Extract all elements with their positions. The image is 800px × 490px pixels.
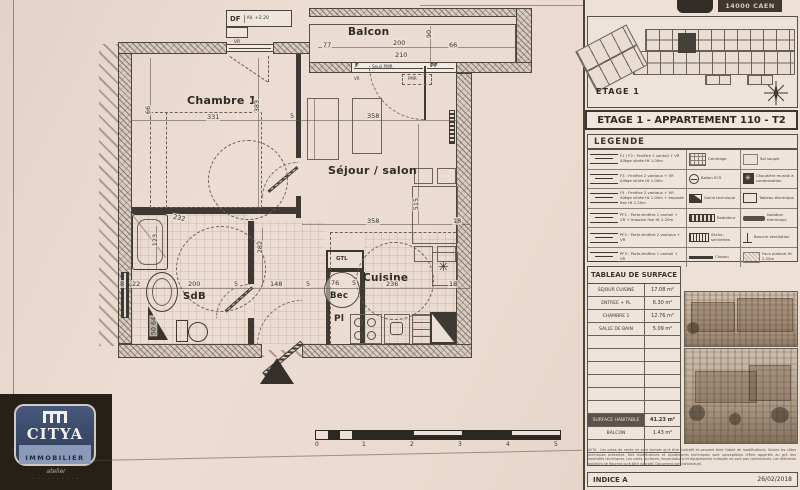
bouche-ventilation-icon bbox=[743, 233, 752, 243]
legend-text: Chaudière murale à condensation bbox=[756, 174, 795, 184]
surface-total-label: SURFACE HABITABLE bbox=[588, 414, 645, 426]
dim-line bbox=[262, 228, 263, 286]
dim-line bbox=[120, 288, 470, 289]
room-label-bec: Bec bbox=[330, 291, 348, 301]
surface-balcon-value: 1.43 m² bbox=[645, 427, 680, 439]
legend-text: F3 : Fenêtre 2 vantaux + VR Allège vitré… bbox=[620, 174, 684, 184]
legend-text: F1 / F2 : Fenêtre 1 vantail + VR Allège … bbox=[620, 154, 684, 164]
legend-row: F1 / F2 : Fenêtre 1 vantail + VR Allège … bbox=[588, 150, 797, 170]
dim-label: 66 bbox=[448, 41, 458, 49]
wall-balcony-right bbox=[516, 8, 532, 66]
tableau-electrique-icon bbox=[743, 193, 757, 203]
surface-row-empty bbox=[588, 388, 680, 401]
building-render-2 bbox=[684, 348, 798, 444]
cloison-icon bbox=[689, 256, 713, 259]
legend-text: PF2 : Porte-fenêtre 2 vantaux + VR bbox=[620, 233, 684, 243]
surface-label: ENTREE + PL bbox=[588, 297, 645, 309]
window-symbol bbox=[590, 213, 618, 223]
dim-label: 358 bbox=[366, 112, 380, 120]
wall-bottom-left bbox=[118, 344, 262, 358]
building-strip bbox=[633, 51, 795, 75]
surface-row: CHAMBRE 112.76 m² bbox=[588, 310, 680, 323]
surface-balcon-row: BALCON1.43 m² bbox=[588, 427, 680, 440]
legend-text: F4 : Fenêtre 2 vantaux + VR Allège vitré… bbox=[620, 191, 684, 206]
dim-label: 5 bbox=[351, 279, 357, 287]
column-icon bbox=[43, 411, 67, 423]
scale-tick: 3 bbox=[458, 441, 462, 448]
footer-band: INDICE A 26/02/2018 bbox=[587, 472, 798, 487]
dim-label: 18 bbox=[452, 217, 462, 225]
legend-row: F3 : Fenêtre 2 vantaux + VR Allège vitré… bbox=[588, 170, 797, 190]
room-label-chambre: Chambre 1 bbox=[187, 94, 257, 107]
dim-label: 123 bbox=[151, 233, 159, 247]
citya-logo-shield: CITYA IMMOBILIER bbox=[14, 404, 96, 466]
label-vr2: VR bbox=[354, 76, 360, 81]
date-text: 26/02/2018 bbox=[757, 476, 792, 483]
building-render-1 bbox=[684, 291, 798, 347]
indice-text: INDICE A bbox=[593, 476, 628, 484]
dim-label: 282 bbox=[256, 240, 264, 254]
surface-heading-text: TABLEAU DE SURFACE bbox=[591, 271, 677, 279]
dim-label: 358 bbox=[366, 217, 380, 225]
stove-burner bbox=[367, 331, 376, 340]
city-band: 14000 CAEN bbox=[718, 0, 782, 12]
legend-text: Gaine technique bbox=[704, 196, 735, 201]
dim-line bbox=[302, 224, 470, 225]
site-plan-box: ETAGE 1 bbox=[587, 16, 798, 108]
legend-row: PF2 : Porte-fenêtre 2 vantaux + VR Sèche… bbox=[588, 228, 797, 248]
citya-brand-text: CITYA bbox=[27, 425, 84, 443]
dim-label: 5 bbox=[289, 112, 295, 120]
chaudiere-icon bbox=[743, 173, 754, 184]
towel-radiator bbox=[121, 272, 129, 318]
dim-label: 210 bbox=[394, 51, 408, 59]
toilet-bowl bbox=[188, 322, 208, 342]
surface-value: 6.30 m² bbox=[645, 297, 680, 309]
citya-subbrand-band: IMMOBILIER bbox=[19, 445, 91, 464]
window-symbol bbox=[590, 174, 618, 184]
legend-row: F4 : Fenêtre 2 vantaux + VR Allège vitré… bbox=[588, 189, 797, 209]
scale-bar: 0 1 2 3 4 5 bbox=[315, 430, 562, 449]
scale-tick: 0 bbox=[315, 441, 319, 448]
compass-icon bbox=[764, 81, 788, 105]
legend-row: PF3 : Porte-fenêtre 1 vantail + VR Clois… bbox=[588, 248, 797, 267]
plan-title: ETAGE 1 - APPARTEMENT 110 - T2 bbox=[597, 115, 786, 126]
wall-top-right bbox=[273, 42, 310, 54]
df-swing-line2 bbox=[268, 56, 269, 82]
dim-label: 515 bbox=[412, 197, 420, 211]
surface-total-row: SURFACE HABITABLE41.23 m² bbox=[588, 414, 680, 427]
label-pmr: PMR bbox=[408, 76, 417, 81]
bed-head-line bbox=[166, 112, 167, 208]
toilet-tank bbox=[176, 320, 188, 342]
sink-bowl bbox=[390, 322, 403, 335]
dim-label: 50 64 bbox=[149, 316, 157, 337]
scale-segment bbox=[414, 430, 463, 440]
dim-label: 77 bbox=[322, 41, 332, 49]
legend-text: Isolation thermique bbox=[767, 213, 795, 223]
exterior-hatch-left bbox=[99, 44, 118, 346]
window-symbol bbox=[590, 233, 618, 243]
stove-burner bbox=[354, 331, 363, 340]
dim-line bbox=[132, 120, 456, 121]
promoter-logo bbox=[677, 0, 713, 13]
floor-label: ETAGE 1 bbox=[596, 87, 640, 96]
title-block-sidebar: 14000 CAEN ETAGE 1 ETAGE 1 - APPARTEMENT… bbox=[583, 0, 800, 490]
room-label-sdb: SdB bbox=[183, 291, 206, 302]
wall-sdb-right-b bbox=[248, 318, 254, 344]
wall-right bbox=[456, 73, 472, 355]
surface-row-empty bbox=[588, 362, 680, 375]
legend-text: Carrelage bbox=[708, 157, 726, 162]
facade-left bbox=[309, 62, 352, 73]
surface-row: SEJOUR CUISINE17.08 m² bbox=[588, 284, 680, 297]
scale-tick: 1 bbox=[362, 441, 366, 448]
surface-row: ENTREE + PL6.30 m² bbox=[588, 297, 680, 310]
citya-logo-block: CITYA IMMOBILIER atelier · · · · · · · ·… bbox=[0, 396, 112, 490]
legend-text: PF3 : Porte-fenêtre 1 vantail + VR bbox=[620, 252, 684, 262]
ballon-ecs-icon bbox=[689, 174, 699, 184]
sofa bbox=[307, 98, 339, 160]
legend-row: PF1 : Porte-fenêtre 1 vantail + VR + Imp… bbox=[588, 209, 797, 229]
citya-subbrand-text: IMMOBILIER bbox=[25, 454, 84, 462]
dim-label: 5 bbox=[233, 280, 239, 288]
faux-plafond-icon bbox=[743, 252, 760, 263]
citya-letters-row: · · · · · · · · · · bbox=[0, 477, 112, 482]
citya-tagline: atelier bbox=[0, 468, 112, 475]
partition-chambre-a bbox=[296, 54, 301, 158]
surface-table: SEJOUR CUISINE17.08 m² ENTREE + PL6.30 m… bbox=[587, 284, 681, 466]
ballon-ecs-circle bbox=[324, 272, 360, 308]
scale-tick: 5 bbox=[554, 441, 558, 448]
room-label-balcon: Balcon bbox=[348, 26, 389, 38]
window-symbol bbox=[590, 193, 618, 203]
window-symbol bbox=[590, 252, 618, 262]
scale-segment bbox=[365, 430, 414, 440]
surface-row-empty bbox=[588, 375, 680, 388]
window-symbol bbox=[590, 154, 618, 164]
surface-value: 17.08 m² bbox=[645, 284, 680, 296]
label-df-note: All. +2.20 bbox=[245, 16, 271, 21]
building-strip bbox=[645, 29, 795, 51]
dim-label: 331 bbox=[206, 113, 220, 121]
scale-tick: 2 bbox=[410, 441, 414, 448]
coffee-table bbox=[352, 98, 382, 154]
legend-text: Sèche-serviettes bbox=[711, 233, 738, 243]
dim-label: 66 bbox=[144, 105, 152, 115]
washbasin-inner bbox=[152, 278, 172, 306]
surface-label: CHAMBRE 1 bbox=[588, 310, 645, 322]
balcony-floor bbox=[309, 24, 516, 64]
label-seuil-pmr: Seuil PMR bbox=[372, 64, 393, 69]
legend-text: Ballon ECS bbox=[701, 176, 721, 181]
surface-row-empty bbox=[588, 401, 680, 414]
dim-line bbox=[258, 58, 259, 214]
surface-balcon-label: BALCON bbox=[588, 427, 645, 439]
room-label-pl: Pl bbox=[334, 314, 344, 324]
label-pf: PF bbox=[430, 63, 438, 69]
isolation-icon bbox=[743, 216, 765, 221]
scale-segment bbox=[463, 430, 512, 440]
balcony-separation-strip bbox=[309, 8, 532, 17]
scale-segment bbox=[316, 430, 365, 440]
surface-row-empty bbox=[588, 349, 680, 362]
legend-text: Faux plafond Ht 2.20m bbox=[762, 252, 795, 262]
window-df bbox=[227, 44, 273, 52]
dim-label: 200 bbox=[187, 280, 201, 288]
radiator-sejour bbox=[449, 110, 455, 144]
dim-label: 148 bbox=[269, 280, 283, 288]
surface-value: 12.76 m² bbox=[645, 310, 680, 322]
facade-right-step bbox=[456, 62, 532, 73]
legend-text: Bouche ventilation bbox=[754, 235, 790, 240]
building-annex bbox=[705, 75, 731, 85]
seche-serviettes-icon bbox=[689, 233, 709, 242]
dim-label: 5 bbox=[305, 280, 311, 288]
surface-total-value: 41.23 m² bbox=[645, 414, 680, 426]
label-f: F bbox=[355, 63, 359, 69]
sofa-line bbox=[314, 99, 315, 159]
dim-label: 200 bbox=[392, 39, 406, 47]
gaine-technique-icon bbox=[689, 194, 702, 203]
df-box: DF All. +2.20 bbox=[226, 10, 292, 27]
kitchen-shelves bbox=[412, 314, 432, 344]
stove-burner bbox=[354, 318, 363, 327]
scale-segment bbox=[512, 430, 561, 440]
legend-table: F1 / F2 : Fenêtre 1 vantail + VR Allège … bbox=[587, 149, 798, 262]
dim-label: 8 bbox=[119, 280, 125, 288]
surface-label: SEJOUR CUISINE bbox=[588, 284, 645, 296]
dim-label: 90 bbox=[425, 29, 433, 39]
chair bbox=[437, 168, 456, 184]
nota-text: NOTA : Les plans de vente ne sont donnés… bbox=[587, 448, 796, 466]
plan-title-band: ETAGE 1 - APPARTEMENT 110 - T2 bbox=[585, 110, 798, 130]
surface-row: SALLE DE BAIN5.09 m² bbox=[588, 323, 680, 336]
wall-top-left bbox=[118, 42, 227, 54]
room-label-sejour: Séjour / salon bbox=[328, 164, 417, 177]
legend-heading: LEGENDE bbox=[588, 137, 645, 147]
legend-text: Tableau électrique bbox=[759, 196, 794, 201]
pmr-threshold-box bbox=[402, 74, 432, 85]
dim-label: 236 bbox=[385, 280, 399, 288]
legend-text: PF1 : Porte-fenêtre 1 vantail + VR + Imp… bbox=[620, 213, 684, 223]
legend-text: Radiateur bbox=[717, 216, 735, 221]
label-gtl: GTL bbox=[336, 256, 348, 262]
surface-table-heading: TABLEAU DE SURFACE bbox=[587, 266, 681, 284]
dim-label: 76 bbox=[330, 279, 340, 287]
chair bbox=[414, 246, 433, 262]
surface-value: 5.09 m² bbox=[645, 323, 680, 335]
appliance-triangle bbox=[432, 314, 454, 342]
scanned-floorplan-page: ✳ Chambre 1 Séjour / salon SdB Cuisine B… bbox=[0, 0, 800, 490]
vr-box: VR bbox=[226, 27, 248, 38]
legend-text: Sol souple bbox=[760, 157, 780, 162]
surface-row-empty bbox=[588, 336, 680, 349]
dim-line bbox=[318, 47, 516, 48]
label-df: DF bbox=[227, 15, 245, 23]
vmc-asterisk-icon: ✳ bbox=[438, 260, 449, 275]
dim-label: 383 bbox=[253, 99, 261, 113]
scale-tick: 4 bbox=[506, 441, 510, 448]
label-vr: VR bbox=[234, 40, 240, 45]
carrelage-icon bbox=[689, 153, 706, 166]
city-text: 14000 CAEN bbox=[725, 2, 775, 10]
stove-burner bbox=[367, 318, 376, 327]
surface-label: SALLE DE BAIN bbox=[588, 323, 645, 335]
dim-label: 22 bbox=[131, 280, 141, 288]
dim-label: 18 bbox=[448, 280, 458, 288]
sol-souple-icon bbox=[743, 154, 758, 165]
highlighted-unit bbox=[678, 33, 696, 53]
legend-text: Cloison bbox=[715, 255, 729, 260]
entrance-marker-icon bbox=[260, 358, 294, 384]
building-wing bbox=[575, 24, 648, 92]
df-swing-line bbox=[229, 56, 268, 83]
radiateur-icon bbox=[689, 214, 715, 222]
legend-heading-box: LEGENDE bbox=[587, 134, 798, 149]
wall-bottom-right bbox=[302, 344, 472, 358]
